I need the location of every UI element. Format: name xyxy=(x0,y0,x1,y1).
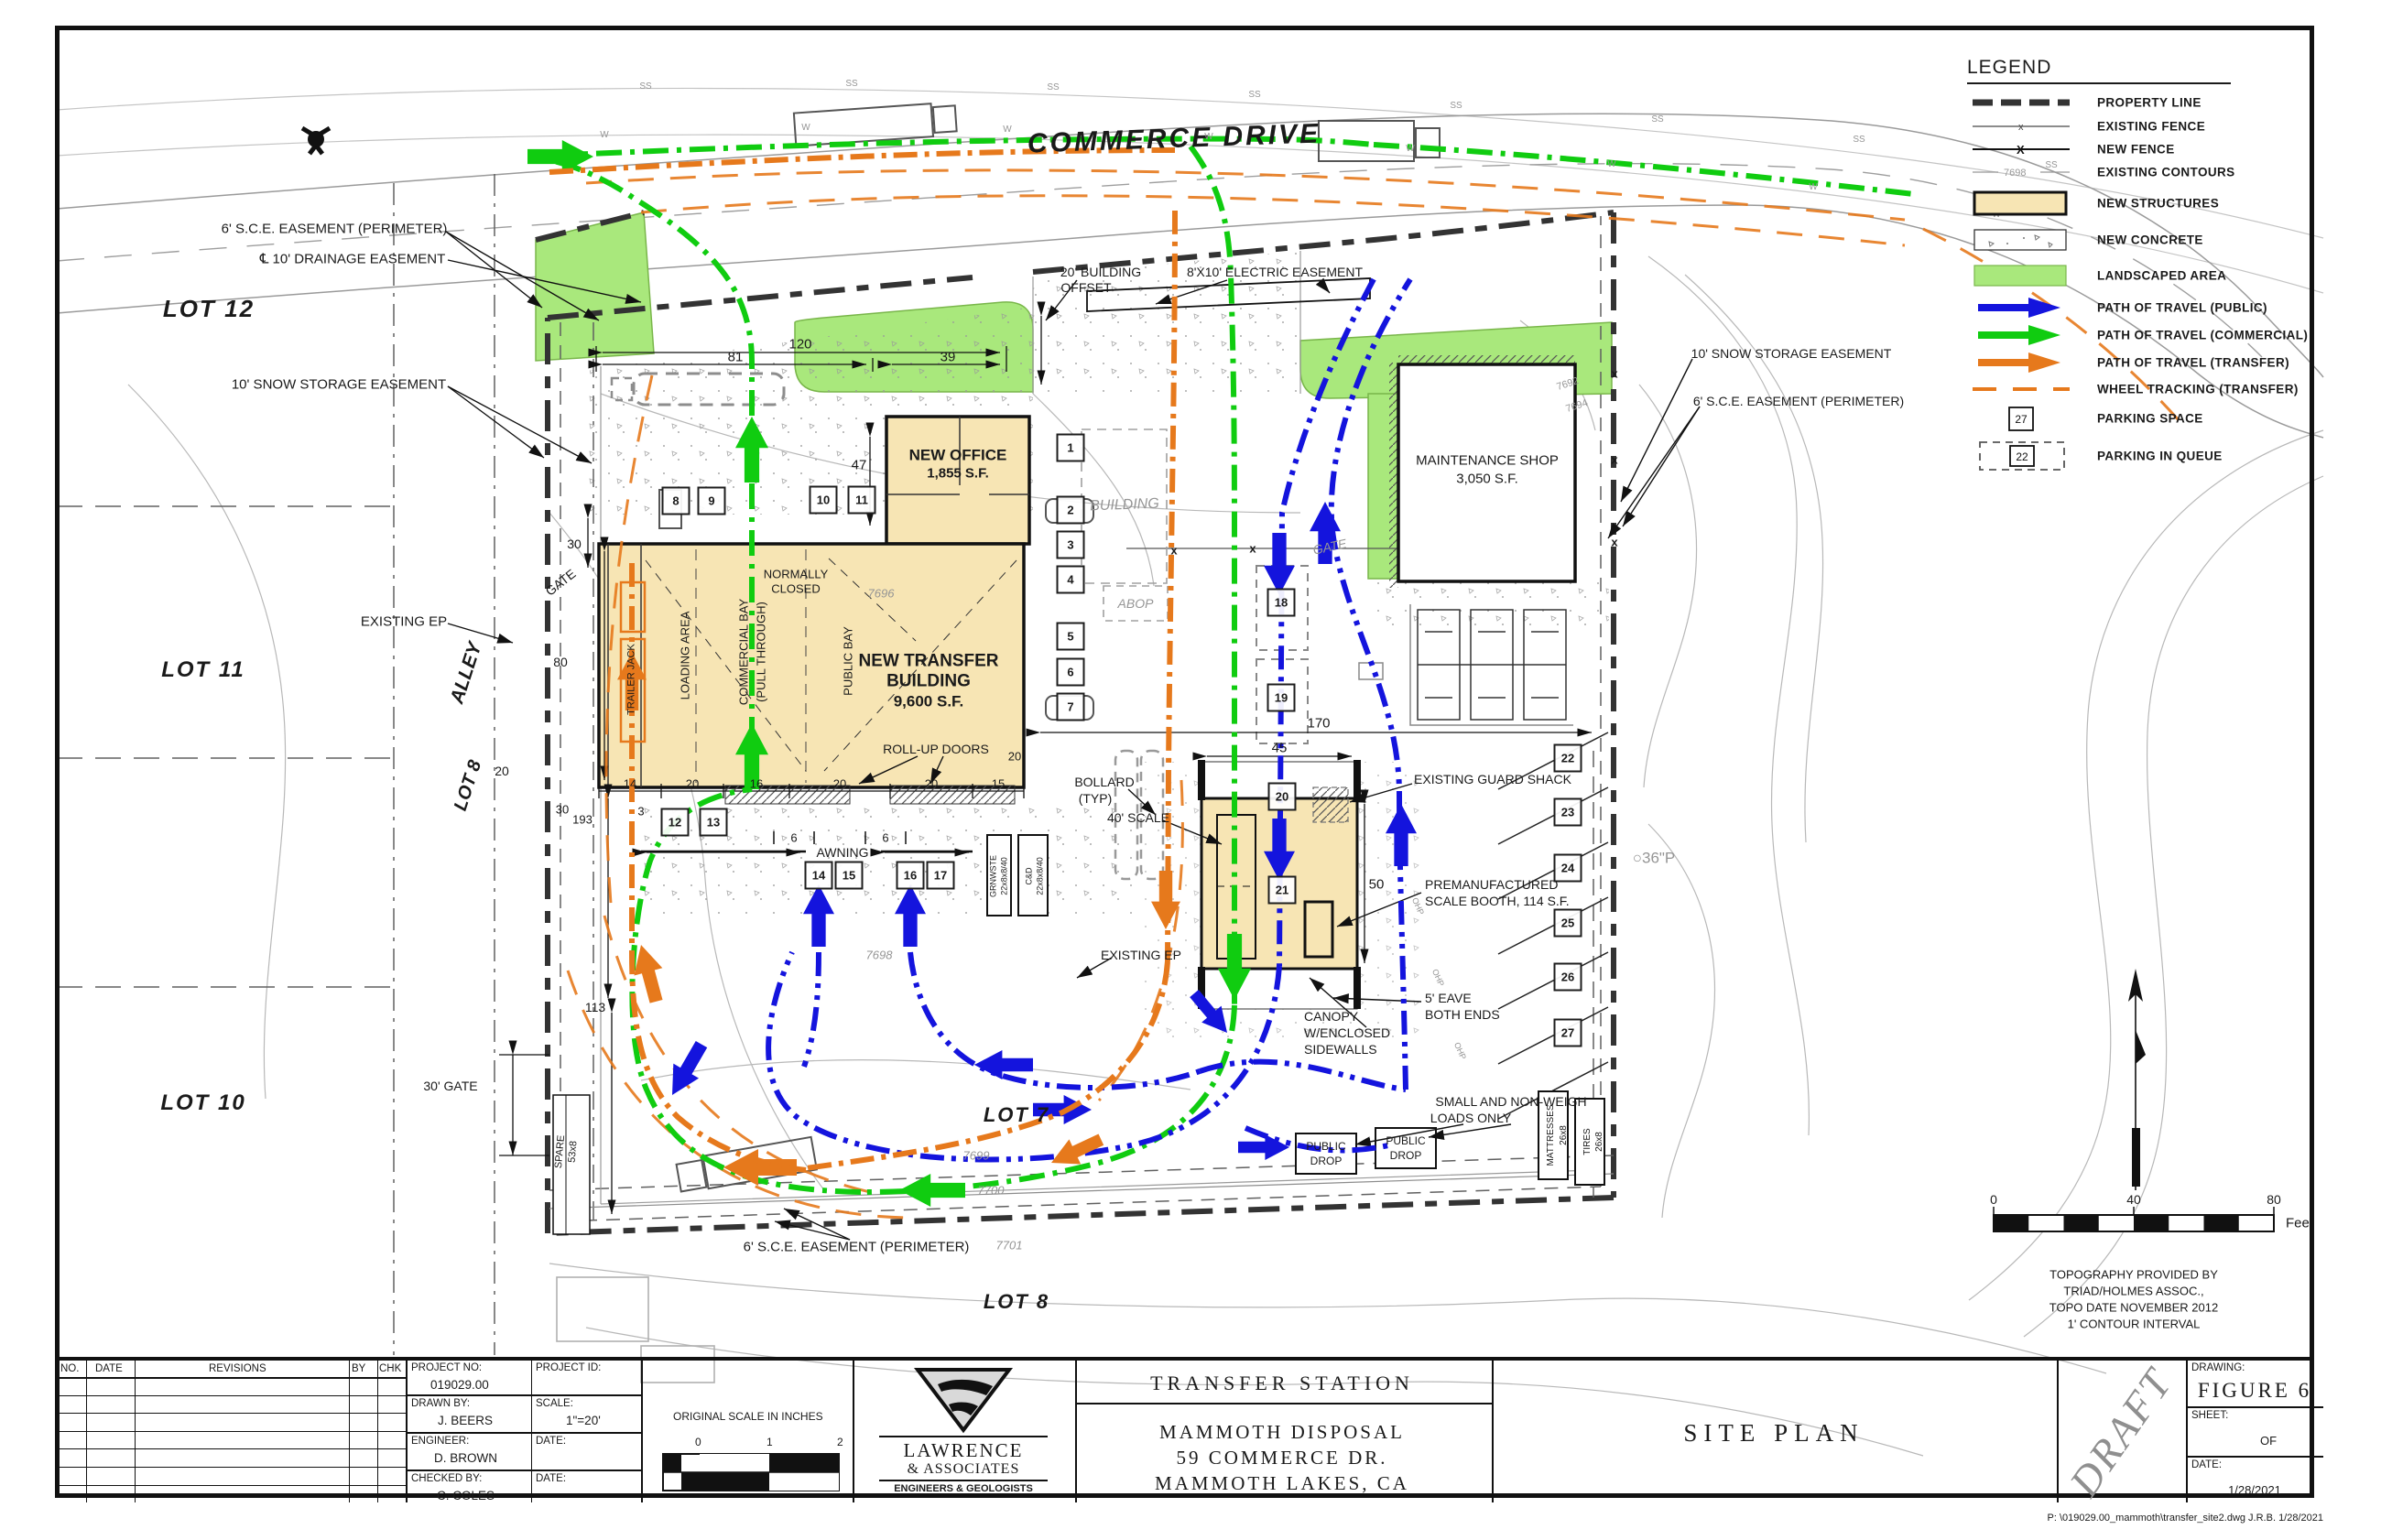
tb-divider xyxy=(2057,1361,2059,1502)
revision-row-line xyxy=(57,1485,406,1486)
firm-name-3: ENGINEERS & GEOLOGISTS xyxy=(894,1483,1033,1494)
project-address: 59 COMMERCE DR. xyxy=(1176,1447,1387,1470)
firm-logo xyxy=(908,1364,1018,1436)
engineer: D. BROWN xyxy=(434,1451,497,1465)
figure-number: FIGURE 6 xyxy=(2198,1379,2311,1403)
drawing-label: DRAWING: xyxy=(2191,1362,2245,1373)
date-label-3: DATE: xyxy=(2191,1459,2222,1470)
os-tick-0: 0 xyxy=(695,1436,701,1448)
tb-divider xyxy=(641,1361,643,1502)
engineer-label: ENGINEER: xyxy=(411,1436,469,1447)
tb-divider xyxy=(2186,1361,2188,1502)
sheet-label: SHEET: xyxy=(2191,1410,2228,1421)
os-tick-2: 2 xyxy=(837,1436,843,1448)
project-no: 019029.00 xyxy=(430,1378,489,1392)
project-city: MAMMOTH LAKES, CA xyxy=(1155,1472,1409,1495)
date-label-1: DATE: xyxy=(536,1436,566,1447)
project-client: MAMMOTH DISPOSAL xyxy=(1159,1421,1405,1444)
rev-col-by: BY xyxy=(352,1363,365,1374)
file-path-note: P: \019029.00_mammoth\transfer_site2.dwg… xyxy=(2048,1513,2323,1524)
site-plan-sheet: { "colors":{"paper":"#ffffff","ink":"#1a… xyxy=(0,0,2381,1540)
rev-col-no: NO. xyxy=(60,1363,79,1374)
date-label-2: DATE: xyxy=(536,1473,566,1484)
original-scale-label: ORIGINAL SCALE IN INCHES xyxy=(673,1410,823,1423)
scale-label: SCALE: xyxy=(536,1398,573,1409)
sheet-border xyxy=(55,26,2314,1498)
rev-col-chk: CHK xyxy=(379,1363,401,1374)
tb-divider xyxy=(1075,1361,1077,1502)
revision-row-line xyxy=(57,1413,406,1414)
sheet-of: OF xyxy=(2260,1434,2277,1448)
project-no-label: PROJECT NO: xyxy=(411,1362,482,1373)
tb-divider xyxy=(853,1361,854,1502)
drawn-by-label: DRAWN BY: xyxy=(411,1398,470,1409)
sheet-title: SITE PLAN xyxy=(1683,1419,1864,1448)
drawn-by: J. BEERS xyxy=(438,1414,493,1427)
checked-by-label: CHECKED BY: xyxy=(411,1473,482,1484)
scale-value: 1"=20' xyxy=(566,1414,601,1427)
checked-by: C. COLES xyxy=(437,1489,495,1502)
firm-name-1: LAWRENCE xyxy=(904,1439,1024,1462)
rev-col-revisions: REVISIONS xyxy=(209,1363,266,1374)
revision-row-line xyxy=(57,1431,406,1432)
firm-name-2: & ASSOCIATES xyxy=(908,1461,1020,1478)
original-scale-bar xyxy=(661,1452,844,1494)
revision-row-line xyxy=(57,1395,406,1396)
os-tick-1: 1 xyxy=(766,1436,773,1448)
title-block-top-rule xyxy=(55,1357,2314,1361)
rev-col-date: DATE xyxy=(95,1363,123,1374)
tb-divider xyxy=(1492,1361,1494,1502)
project-id-label: PROJECT ID: xyxy=(536,1362,601,1373)
revision-row-line xyxy=(57,1448,406,1449)
revision-row-line xyxy=(57,1467,406,1468)
project-title: TRANSFER STATION xyxy=(1150,1372,1414,1395)
sheet-date: 1/28/2021 xyxy=(2228,1483,2281,1497)
